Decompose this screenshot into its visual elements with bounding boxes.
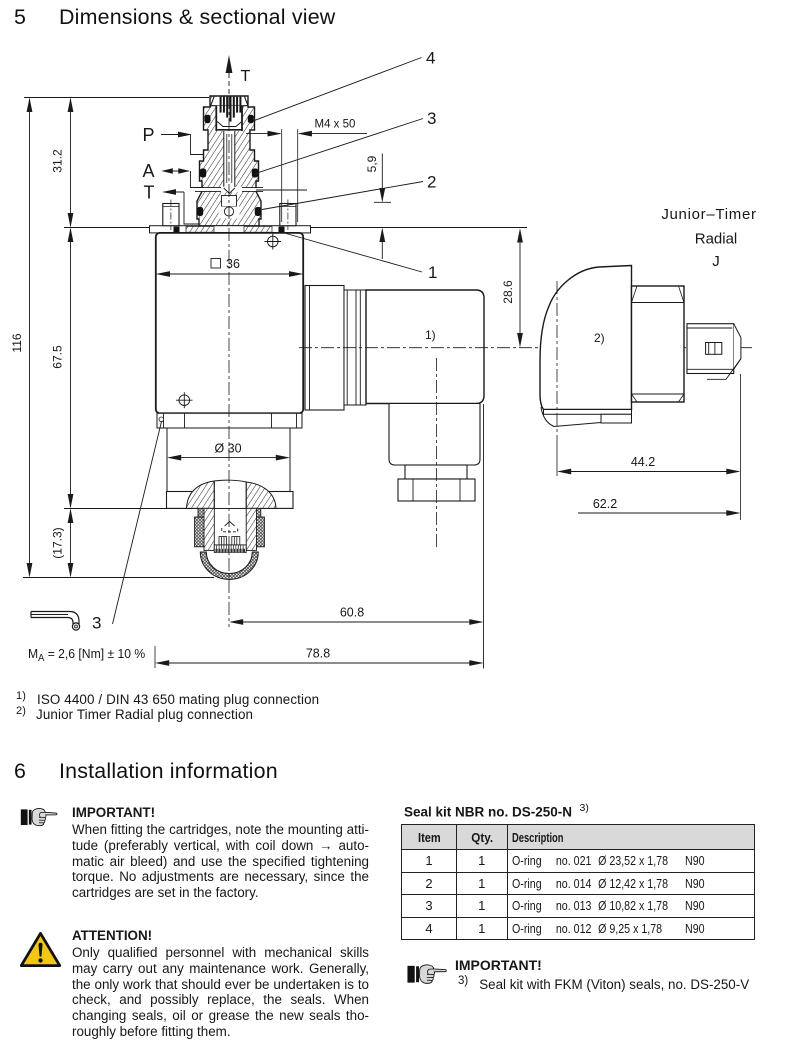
svg-text:3: 3 — [92, 614, 101, 633]
svg-text:62.2: 62.2 — [593, 497, 617, 511]
svg-text:67.5: 67.5 — [51, 345, 65, 369]
svg-text:60.8: 60.8 — [340, 606, 364, 620]
svg-text:4: 4 — [426, 49, 435, 68]
svg-text:Radial: Radial — [695, 231, 738, 248]
svg-text:1): 1) — [425, 328, 436, 342]
svg-text:2: 2 — [427, 173, 436, 192]
svg-text:P: P — [143, 125, 155, 145]
svg-text:Ø 30: Ø 30 — [214, 442, 241, 456]
svg-text:5,9: 5,9 — [365, 155, 379, 172]
svg-text:3: 3 — [427, 109, 436, 128]
svg-text:A: A — [143, 161, 155, 181]
svg-text:36: 36 — [226, 257, 240, 271]
svg-text:78.8: 78.8 — [306, 647, 330, 661]
svg-text:T: T — [144, 182, 155, 202]
svg-text:J: J — [712, 253, 720, 270]
svg-text:M4 x 50: M4 x 50 — [315, 119, 356, 131]
svg-text:2): 2) — [594, 331, 605, 345]
svg-text:31.2: 31.2 — [51, 149, 65, 173]
svg-text:T: T — [241, 68, 251, 85]
svg-text:1: 1 — [428, 263, 437, 282]
svg-text:116: 116 — [10, 333, 24, 352]
svg-text:44.2: 44.2 — [631, 455, 655, 469]
svg-text:Junior–Timer: Junior–Timer — [661, 206, 756, 223]
svg-text:(17.3): (17.3) — [51, 527, 65, 558]
svg-text:28.6: 28.6 — [501, 280, 515, 304]
svg-text:MA = 2,6 [Nm] ± 10 %: MA = 2,6 [Nm] ± 10 % — [28, 647, 145, 664]
